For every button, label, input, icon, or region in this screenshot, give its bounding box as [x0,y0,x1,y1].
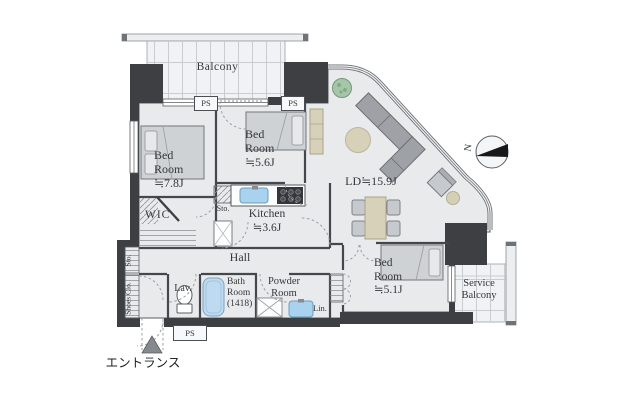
side-table-icon [447,192,460,205]
lavatory-label: Lav. [169,283,197,295]
sink-icon [240,188,268,203]
kitchen-counter [231,185,305,206]
rug-icon [346,128,371,153]
balcony-label: Balcony [180,61,255,75]
compass-north-label: N [462,140,478,156]
wic-label: WIC [145,209,170,223]
floor-plan-canvas [0,0,640,410]
kitchen-label: Kitchen ≒3.6J [238,208,296,235]
washer-icon [257,298,282,317]
storage-upper-label: Sto. [210,204,236,213]
pipe-space-label: PS [281,96,305,111]
floor-plan: Balcony Bed Room ≒7.8J Bed Room ≒5.6J Be… [0,0,640,410]
hall-label: Hall [220,250,260,264]
bedroom-78-label: Bed Room ≒7.8J [154,148,184,190]
linen-label: Lin. [313,303,327,313]
living-dining-label: LD≒15.9J [338,174,404,188]
bathtub-icon [203,278,224,316]
vanity-sink-icon [289,299,313,317]
compass-icon [476,136,508,168]
powder-room-label: Powder Room [258,276,310,301]
shoes-closet-label: Shoes Clo. [125,277,136,321]
bathroom-label: Bath Room (1418) [227,277,252,311]
shelf-icon [310,109,323,154]
plant-icon [333,79,352,98]
bedroom-51-label: Bed Room ≒5.1J [374,257,403,298]
pipe-space-label: PS [194,96,218,111]
pipe-space-label: PS [173,325,207,341]
entrance-label: エントランス [93,356,193,371]
service-balcony-label: Service Balcony [450,278,508,303]
bedroom-56-label: Bed Room ≒5.6J [245,127,275,169]
storage-entry-label: Sto. [125,246,136,276]
